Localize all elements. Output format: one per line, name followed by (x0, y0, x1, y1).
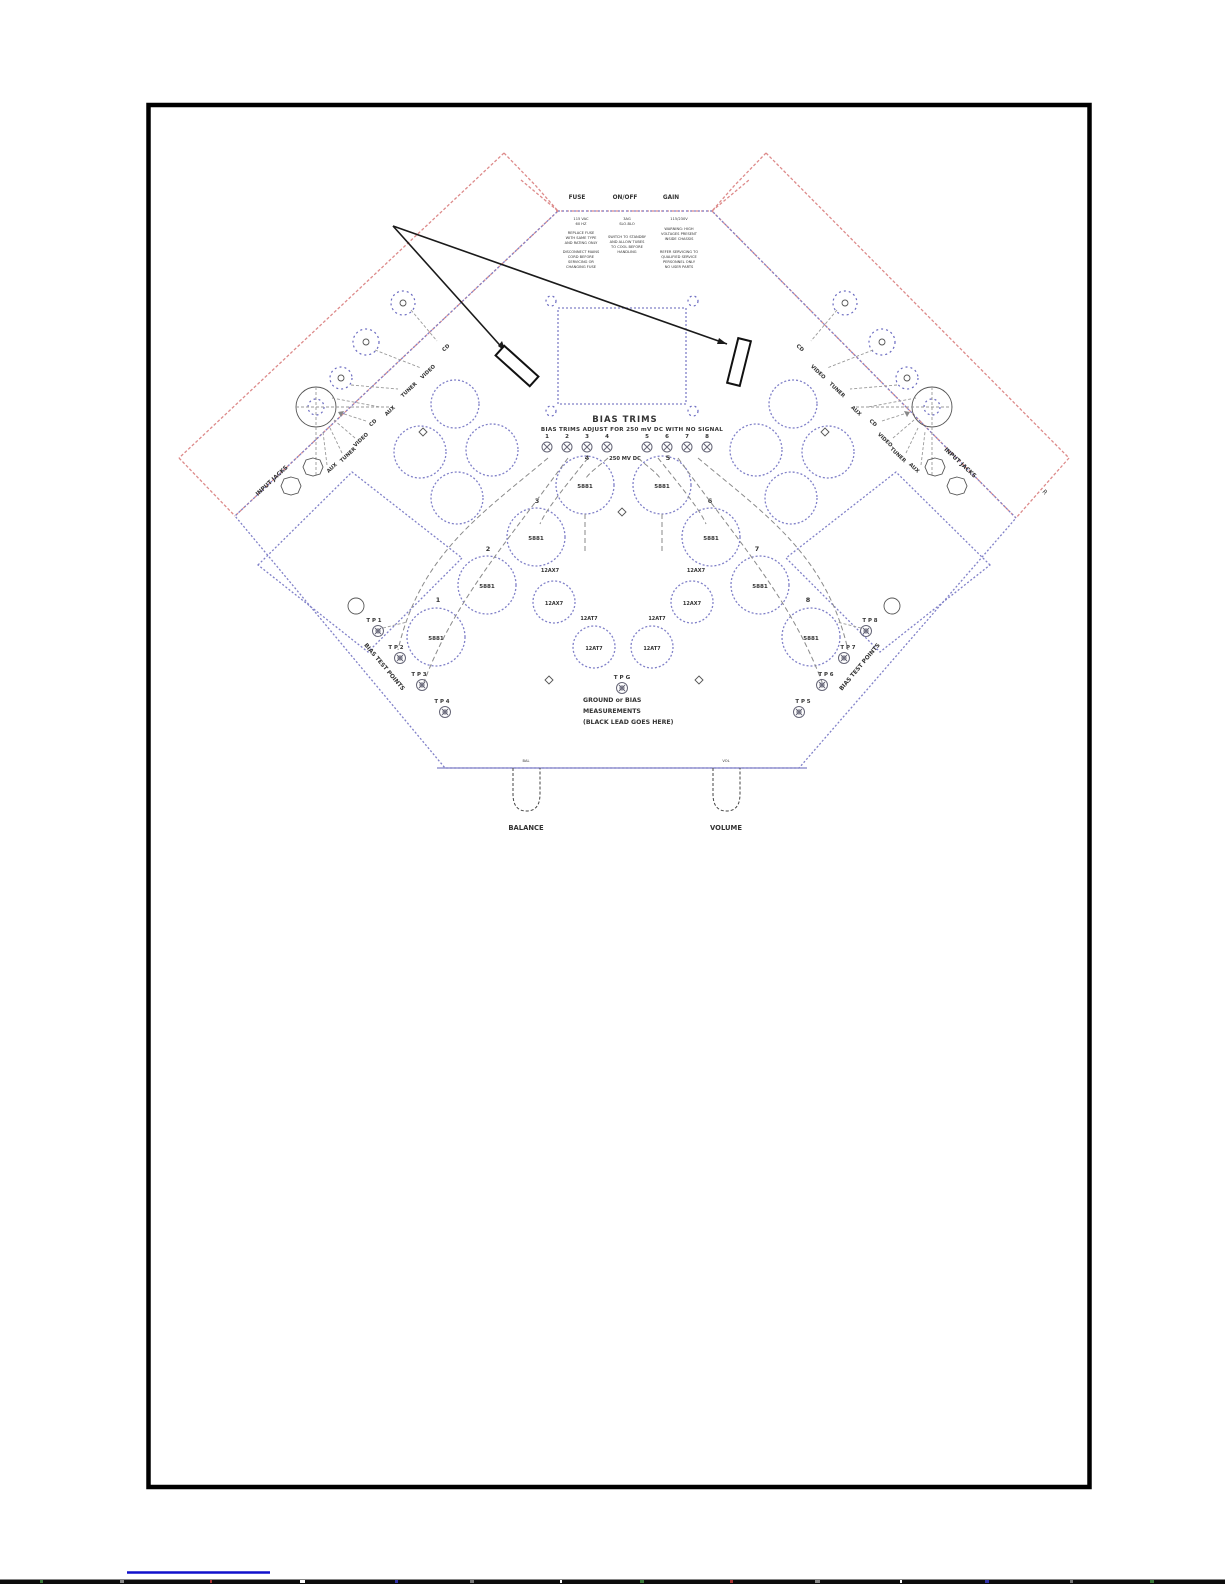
wiring-leaders (383, 458, 861, 682)
svg-text:115/230V: 115/230V (670, 217, 688, 221)
trim-number-6: 6 (665, 434, 669, 440)
test-point-tp4: T P 4 (434, 699, 449, 705)
svg-text:CHANGING FUSE: CHANGING FUSE (566, 265, 597, 269)
input-label-cd: CD (368, 418, 379, 428)
test-point-tp1: T P 1 (366, 618, 381, 624)
balance-small-label: BAL (523, 759, 530, 763)
input-labels-left: CD VIDEO TUNER AUX CD VIDEO TUNER AUX IN… (255, 343, 452, 498)
svg-text:QUALIFIED SERVICE: QUALIFIED SERVICE (661, 255, 697, 259)
svg-text:REFER SERVICING TO: REFER SERVICING TO (660, 250, 698, 254)
rear-switch-fuse: FUSE (569, 195, 586, 201)
input-label-tuner: TUNER (888, 446, 906, 464)
svg-text:NO USER PARTS: NO USER PARTS (665, 265, 694, 269)
input-label-aux: AUX (849, 405, 862, 418)
driver-tube-callout: 12AT7 (580, 616, 598, 622)
page-border-frame (149, 105, 1090, 1487)
svg-text:REPLACE FUSE: REPLACE FUSE (568, 231, 595, 235)
driver-tube-type: 12AX7 (683, 601, 702, 607)
rear-switch-gain: GAIN (663, 195, 679, 201)
input-label-cd: CD (868, 418, 879, 428)
side-panel-fold-lines (179, 153, 1069, 518)
trim-number-2: 2 (565, 434, 569, 440)
chassis-diagram: 5881 5881 5881 5881 5881 5881 5881 5881 … (0, 0, 1225, 1585)
volume-small-label: VOL (722, 759, 729, 763)
input-jacks-edge-label-right: INPUT JACKS (942, 447, 976, 480)
input-label-aux: AUX (326, 462, 339, 475)
trim-number-7: 7 (685, 434, 689, 440)
trim-number-1: 1 (545, 434, 549, 440)
bias-trims-title: BIAS TRIMS (592, 415, 657, 425)
trim-pots (542, 442, 712, 452)
svg-text:115 VAC: 115 VAC (573, 217, 589, 221)
svg-text:INSIDE CHASSIS: INSIDE CHASSIS (665, 237, 695, 241)
ground-note-line2: MEASUREMENTS (583, 708, 641, 715)
hex-connectors (281, 458, 967, 614)
test-point-tp6: T P 6 (818, 672, 833, 678)
test-point-ground: T P G (614, 675, 631, 681)
tube-number-7: 7 (755, 545, 760, 553)
ground-note-line1: GROUND or BIAS (583, 697, 641, 704)
input-label-video: VIDEO (420, 363, 438, 380)
scanned-manual-page: 5881 5881 5881 5881 5881 5881 5881 5881 … (0, 0, 1225, 1585)
trim-number-4: 4 (605, 434, 609, 440)
tube-8-type: 5881 (803, 636, 819, 642)
tube-number-8: 8 (806, 596, 811, 604)
svg-text:SLO-BLO: SLO-BLO (619, 222, 635, 226)
input-label-aux: AUX (907, 462, 920, 475)
driver-tube-type: 12AT7 (585, 646, 603, 652)
svg-text:60 HZ: 60 HZ (576, 222, 587, 226)
tube-2-type: 5881 (479, 584, 495, 590)
driver-tube-type: 12AX7 (545, 601, 564, 607)
input-label-cd: CD (441, 343, 452, 353)
balance-knob-cutout (513, 768, 540, 811)
input-labels-right: CD VIDEO TUNER AUX CD VIDEO TUNER AUX IN… (795, 343, 977, 479)
svg-text:SERVICING OR: SERVICING OR (568, 260, 594, 264)
tube-number-5: 5 (666, 454, 671, 462)
tube-6-type: 5881 (703, 536, 719, 542)
svg-text:TO COOL BEFORE: TO COOL BEFORE (610, 245, 644, 249)
svg-text:WITH SAME TYPE: WITH SAME TYPE (566, 236, 598, 240)
volume-label: VOLUME (710, 824, 742, 832)
mounting-hole-diamonds (419, 428, 829, 684)
input-label-aux: AUX (384, 405, 397, 418)
page-bottom-scan-noise (0, 1580, 1225, 1585)
ground-note-line3: (BLACK LEAD GOES HERE) (583, 719, 674, 726)
input-label-tuner: TUNER (400, 381, 418, 399)
trim-number-5: 5 (645, 434, 649, 440)
svg-text:AND ALLOW TUBES: AND ALLOW TUBES (610, 240, 645, 244)
input-label-video: VIDEO (809, 364, 827, 381)
volume-knob-cutout (713, 768, 740, 811)
svg-text:DISCONNECT MAINS: DISCONNECT MAINS (563, 250, 600, 254)
switch-flag-left (496, 346, 539, 386)
rear-switch-onoff: ON/OFF (613, 195, 638, 201)
tube-3-type: 5881 (528, 536, 544, 542)
tube-4-type: 5881 (577, 484, 593, 490)
test-point-tp3: T P 3 (411, 672, 426, 678)
tube-1-type: 5881 (428, 636, 444, 642)
svg-text:3AG: 3AG (623, 217, 631, 221)
svg-text:WARNING: HIGH: WARNING: HIGH (664, 227, 693, 231)
test-point-tp2: T P 2 (388, 645, 403, 651)
svg-text:HANDLING: HANDLING (617, 250, 636, 254)
power-transformer (546, 296, 698, 416)
input-label-tuner: TUNER (827, 381, 845, 399)
svg-text:VOLTAGES PRESENT: VOLTAGES PRESENT (661, 232, 698, 236)
trim-number-3: 3 (585, 434, 589, 440)
power-tubes: 5881 5881 5881 5881 5881 5881 5881 5881 … (407, 454, 840, 666)
bias-voltage-note: 250 MV DC (609, 456, 641, 462)
tube-number-2: 2 (486, 545, 491, 553)
test-points: T P 1 T P 2 T P 3 T P 4 T P 8 T P 7 T P … (366, 618, 877, 726)
svg-text:CORD BEFORE: CORD BEFORE (568, 255, 595, 259)
tube-7-type: 5881 (752, 584, 768, 590)
test-point-tp7: T P 7 (840, 645, 855, 651)
front-panel: BAL VOL BALANCE VOLUME (508, 759, 742, 832)
trim-number-8: 8 (705, 434, 709, 440)
svg-text:PERSONNEL ONLY: PERSONNEL ONLY (663, 260, 696, 264)
rear-panel-fineprint: 115 VAC 60 HZ REPLACE FUSE WITH SAME TYP… (563, 217, 699, 269)
rear-panel-text: FUSE ON/OFF GAIN 115 VAC 60 HZ REPLACE F… (563, 195, 699, 269)
switch-flag-right (727, 338, 751, 386)
tube-5-type: 5881 (654, 484, 670, 490)
capacitor-cans (394, 380, 854, 524)
input-label-cd: CD (795, 343, 806, 353)
driver-tube-callout: 12AX7 (687, 568, 706, 574)
input-label-video: VIDEO (353, 431, 371, 448)
bias-trims-instruction: BIAS TRIMS ADJUST FOR 250 mV DC WITH NO … (541, 427, 723, 433)
input-label-tuner: TUNER (339, 446, 357, 464)
tube-number-1: 1 (436, 596, 441, 604)
svg-text:SWITCH TO STANDBY: SWITCH TO STANDBY (608, 235, 647, 239)
chassis-outline (235, 211, 1016, 768)
driver-tubes: 12AX7 12AX7 12AT7 12AT7 12AX7 12AX7 12AT… (533, 568, 713, 668)
test-point-tp5: T P 5 (795, 699, 810, 705)
driver-tube-callout: 12AT7 (648, 616, 666, 622)
bias-trims: BIAS TRIMS BIAS TRIMS ADJUST FOR 250 mV … (541, 415, 723, 462)
balance-label: BALANCE (508, 824, 544, 832)
test-point-tp8: T P 8 (862, 618, 877, 624)
driver-tube-type: 12AT7 (643, 646, 661, 652)
driver-tube-callout: 12AX7 (541, 568, 560, 574)
svg-text:AND RATING ONLY: AND RATING ONLY (565, 241, 598, 245)
